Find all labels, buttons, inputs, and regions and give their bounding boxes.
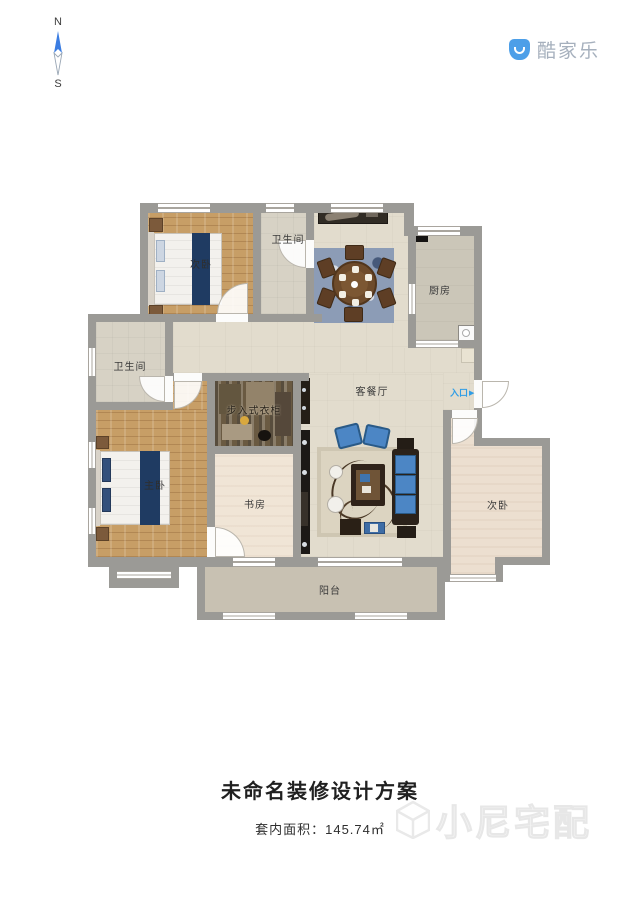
round-side-table — [329, 465, 343, 479]
room-label-master: 主卧 — [144, 477, 166, 492]
floor-plan: 次卧 卫生间 厨房 卫生间 步入式衣柜 客餐厅 书房 主卧 次卧 阳台 入口▶ — [0, 0, 640, 660]
sofa-cushion — [395, 495, 416, 514]
side-table — [397, 438, 414, 449]
cabinet-knob — [302, 440, 307, 445]
round-side-table — [327, 496, 344, 513]
entrance-door-gap — [474, 380, 482, 408]
wall — [443, 410, 451, 582]
pillow — [102, 488, 111, 512]
cabinet-knob — [302, 542, 307, 547]
wardrobe-contents — [222, 424, 252, 440]
wall — [88, 314, 322, 322]
win — [318, 557, 402, 567]
plate — [339, 291, 346, 298]
nightstand — [96, 527, 109, 541]
wall — [437, 567, 445, 620]
wall — [140, 203, 148, 322]
ottoman — [258, 430, 271, 441]
room-label-bedroom-right: 次卧 — [487, 497, 509, 512]
plate — [352, 266, 359, 273]
wall — [293, 373, 301, 565]
wall — [495, 557, 550, 565]
kujiale-logo: 酷家乐 — [509, 36, 600, 63]
win — [355, 612, 407, 620]
plate — [365, 291, 372, 298]
room-label-balcony: 阳台 — [319, 582, 341, 597]
win — [450, 574, 496, 582]
floor-hall — [173, 322, 314, 373]
gap — [216, 314, 248, 322]
room-label-bath-left: 卫生间 — [114, 358, 147, 373]
kitchen-sliding-door — [416, 340, 458, 348]
table-decor — [360, 474, 370, 482]
wall — [253, 213, 261, 314]
gap — [452, 410, 477, 418]
plan-area-text: 套内面积：145.74㎡ — [0, 819, 640, 838]
plate — [352, 299, 359, 306]
gap — [207, 527, 215, 557]
smile-icon — [514, 47, 525, 54]
win — [88, 348, 96, 376]
kujiale-logo-icon — [509, 39, 530, 60]
room-label-kitchen: 厨房 — [429, 282, 451, 297]
floor-bedroom-right — [451, 557, 495, 574]
side-table — [397, 526, 416, 538]
sink-basin — [462, 329, 470, 337]
cabinet-knob — [302, 406, 306, 410]
room-label-bedroom-top: 次卧 — [190, 256, 212, 271]
tv-stand — [340, 519, 361, 535]
plate — [339, 274, 346, 281]
sofa-cushion — [395, 475, 416, 494]
wall — [474, 226, 482, 380]
pillow — [156, 270, 165, 292]
win — [266, 203, 294, 213]
gap — [174, 373, 202, 381]
room-label-bath-top: 卫生间 — [272, 231, 305, 246]
wall — [165, 322, 173, 380]
compass-needle-icon — [52, 30, 64, 76]
nightstand — [149, 218, 163, 232]
win — [158, 203, 210, 213]
entrance-text: 入口 — [450, 386, 468, 399]
compass-north-label: N — [46, 16, 70, 28]
nightstand — [96, 436, 109, 449]
win — [408, 284, 416, 314]
sofa-cushion — [395, 455, 416, 474]
win — [233, 557, 275, 567]
plan-title: 未命名装修设计方案 — [0, 775, 640, 804]
kujiale-logo-text: 酷家乐 — [537, 36, 600, 63]
table-decor — [362, 486, 371, 493]
pillow — [156, 240, 165, 262]
entrance-arrow-icon: ▶ — [469, 389, 474, 397]
wall — [542, 438, 550, 565]
win — [223, 612, 275, 620]
room-label-study: 书房 — [244, 496, 266, 511]
dining-chair — [345, 245, 364, 260]
win — [331, 203, 383, 213]
decor — [370, 524, 378, 532]
win — [88, 508, 96, 534]
compass-south-label: S — [46, 78, 70, 90]
floorplan-page: { "compass": { "north": "N", "south": "S… — [0, 0, 640, 905]
room-label-closet: 步入式衣柜 — [227, 402, 282, 417]
cabinet-knob — [302, 388, 306, 392]
dining-chair — [344, 307, 363, 322]
plate — [365, 274, 372, 281]
wall — [88, 402, 173, 410]
compass: N S — [46, 16, 70, 90]
cabinet-knob — [302, 470, 307, 475]
win — [418, 226, 460, 236]
wall — [474, 438, 550, 446]
wall — [207, 446, 301, 454]
gap — [306, 240, 314, 268]
stool — [240, 416, 249, 425]
tv-screen — [300, 492, 308, 526]
gap — [165, 376, 173, 402]
door-arc-entrance — [482, 381, 509, 408]
entrance-label: 入口▶ — [450, 386, 474, 399]
pillow — [102, 458, 111, 482]
centerpiece — [351, 281, 358, 288]
room-label-living: 客餐厅 — [356, 383, 389, 398]
win — [88, 442, 96, 468]
win — [117, 571, 171, 579]
